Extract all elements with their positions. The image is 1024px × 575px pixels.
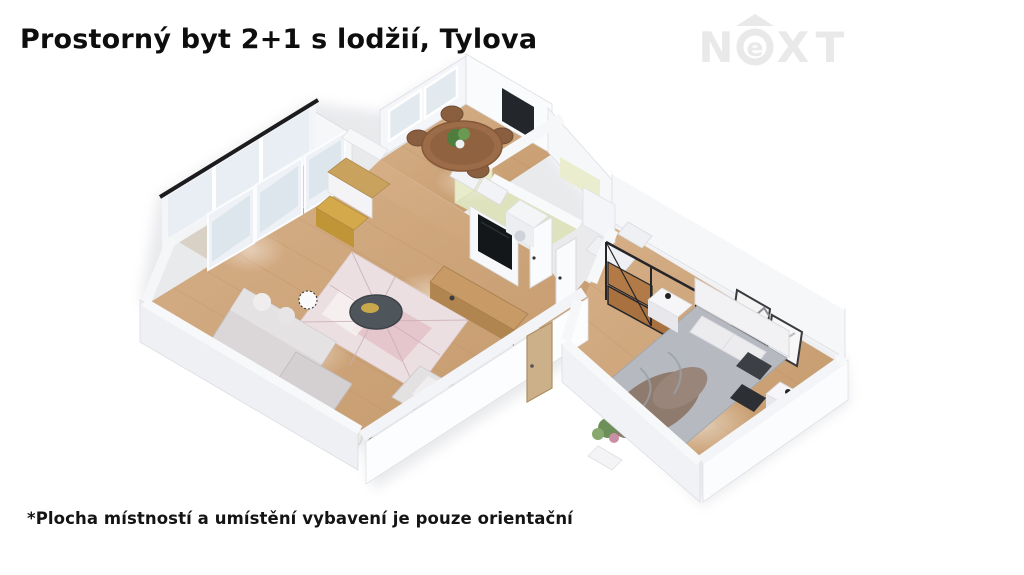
pillow (299, 291, 317, 309)
next-logo-letter-x: X (777, 23, 809, 72)
floorplan-render (0, 0, 1024, 575)
next-logo: N X T e (690, 10, 860, 72)
website-ribbon: WWW.DUMSNU.COM (864, 498, 1024, 554)
listing-image: Prostorný byt 2+1 s lodžií, Tylova N X T… (0, 0, 1024, 575)
next-logo-letter-n: N (698, 23, 733, 72)
page-title: Prostorný byt 2+1 s lodžií, Tylova (20, 24, 537, 55)
disclaimer-text: *Plocha místností a umístění vybavení je… (27, 509, 573, 528)
coffee-table (350, 295, 402, 329)
dining-chair (441, 106, 463, 122)
pillow (253, 293, 271, 311)
next-logo-letter-e: e (747, 33, 764, 62)
next-logo-roof-icon (736, 14, 774, 26)
entry-door (527, 322, 552, 402)
next-logo-letter-t: T (816, 23, 845, 72)
pillow (277, 307, 295, 325)
